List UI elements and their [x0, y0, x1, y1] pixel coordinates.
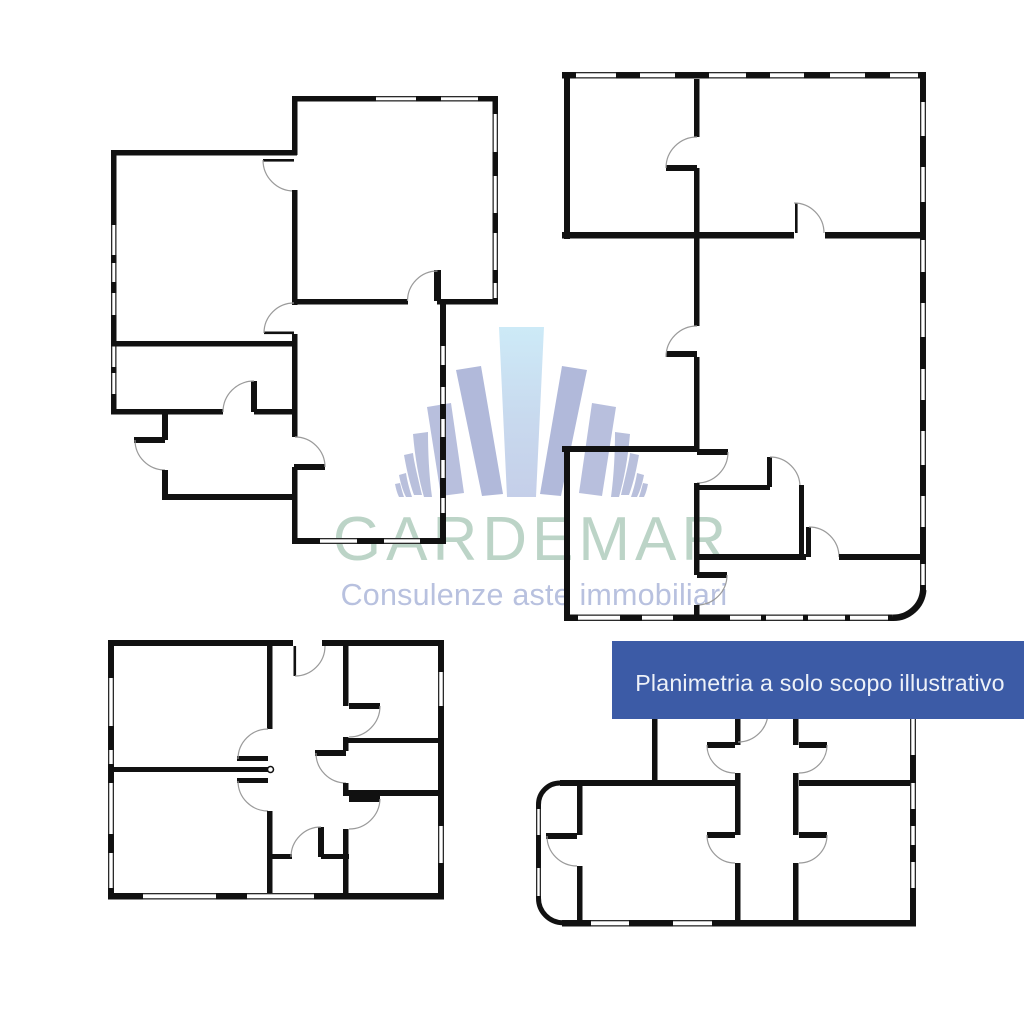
svg-text:Planimetria a solo scopo illus: Planimetria a solo scopo illustrativo — [635, 670, 1005, 696]
svg-text:Consulenze aste immobiliari: Consulenze aste immobiliari — [341, 578, 728, 612]
